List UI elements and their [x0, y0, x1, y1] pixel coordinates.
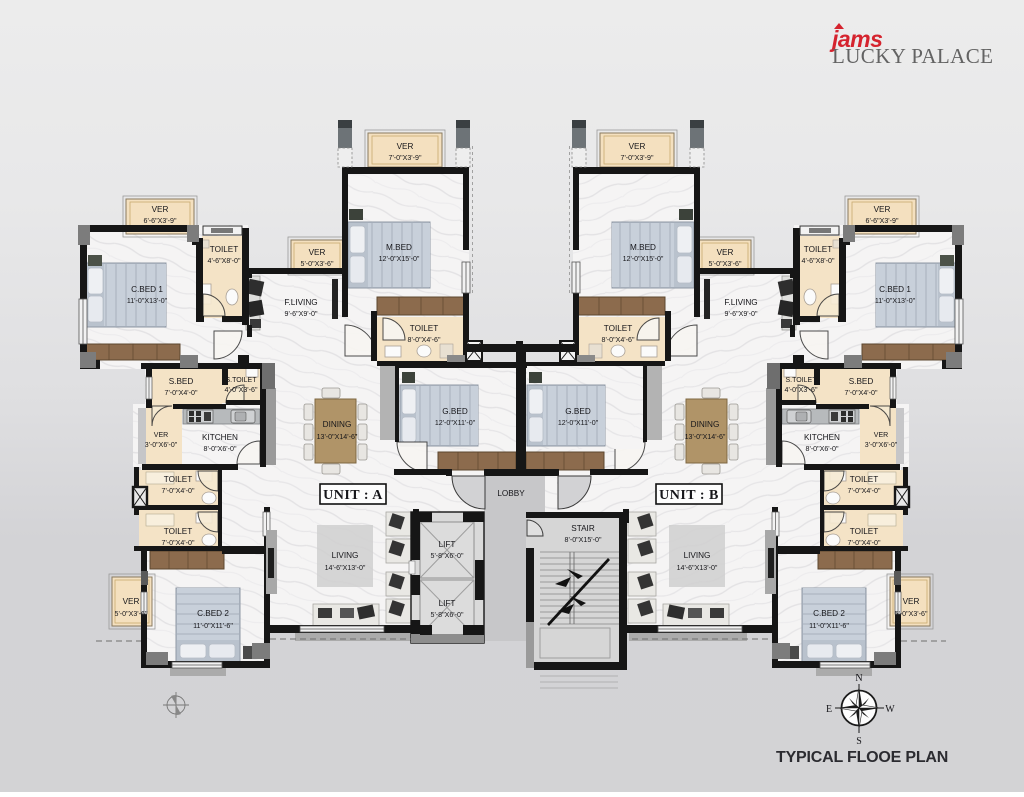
svg-text:DINING: DINING — [323, 420, 352, 429]
svg-text:F.LIVING: F.LIVING — [284, 298, 317, 307]
svg-text:LIFT: LIFT — [439, 540, 456, 549]
svg-text:M.BED: M.BED — [630, 243, 656, 252]
svg-text:5'-0"X3'-6": 5'-0"X3'-6" — [301, 260, 334, 268]
svg-text:LOBBY: LOBBY — [497, 489, 525, 498]
svg-text:W: W — [885, 704, 895, 715]
svg-text:LIVING: LIVING — [332, 551, 359, 560]
svg-text:VER: VER — [903, 597, 920, 606]
svg-text:7'-0"X4'-0": 7'-0"X4'-0" — [845, 389, 878, 397]
svg-text:8'-0"X6'-0": 8'-0"X6'-0" — [204, 445, 237, 453]
svg-text:G.BED: G.BED — [442, 407, 468, 416]
svg-text:TYPICAL FLOOE PLAN: TYPICAL FLOOE PLAN — [776, 749, 948, 766]
svg-text:TOILET: TOILET — [164, 475, 193, 484]
svg-text:7'-0"X4'-0": 7'-0"X4'-0" — [848, 487, 881, 495]
svg-text:TOILET: TOILET — [210, 245, 239, 254]
svg-text:F.LIVING: F.LIVING — [724, 298, 757, 307]
svg-text:4'-0"X3'-6": 4'-0"X3'-6" — [785, 386, 818, 394]
svg-text:UNIT : B: UNIT : B — [659, 488, 719, 503]
svg-text:7'-0"X3'-9": 7'-0"X3'-9" — [389, 154, 422, 162]
svg-text:KITCHEN: KITCHEN — [202, 433, 238, 442]
svg-text:S.BED: S.BED — [849, 377, 874, 386]
svg-text:VER: VER — [874, 432, 888, 439]
svg-text:5'-0"X3'-6": 5'-0"X3'-6" — [895, 610, 928, 618]
svg-text:UNIT : A: UNIT : A — [323, 488, 383, 503]
svg-text:C.BED 1: C.BED 1 — [131, 285, 163, 294]
svg-text:VER: VER — [717, 248, 734, 257]
svg-text:DINING: DINING — [691, 420, 720, 429]
svg-text:LUCKY PALACE: LUCKY PALACE — [832, 44, 993, 68]
svg-text:LIFT: LIFT — [439, 599, 456, 608]
svg-text:8'-0"X4'-6": 8'-0"X4'-6" — [408, 336, 441, 344]
svg-text:VER: VER — [309, 248, 326, 257]
svg-text:7'-0"X4'-0": 7'-0"X4'-0" — [162, 539, 195, 547]
svg-text:8'-0"X15'-0": 8'-0"X15'-0" — [565, 536, 602, 544]
svg-text:N: N — [855, 673, 862, 684]
svg-text:13'-0"X14'-6": 13'-0"X14'-6" — [317, 433, 358, 441]
svg-text:C.BED 1: C.BED 1 — [879, 285, 911, 294]
svg-text:TOILET: TOILET — [410, 324, 439, 333]
svg-text:S: S — [856, 736, 862, 747]
svg-text:VER: VER — [397, 142, 414, 151]
svg-text:S.TOILET: S.TOILET — [226, 377, 258, 384]
svg-text:VER: VER — [154, 432, 168, 439]
svg-text:4'-6"X8'-0": 4'-6"X8'-0" — [208, 257, 241, 265]
svg-text:TOILET: TOILET — [850, 527, 879, 536]
svg-text:7'-0"X4'-0": 7'-0"X4'-0" — [165, 389, 198, 397]
svg-text:12'-0"X15'-0": 12'-0"X15'-0" — [623, 255, 664, 263]
svg-text:VER: VER — [123, 597, 140, 606]
svg-text:4'-0"X3'-6": 4'-0"X3'-6" — [225, 386, 258, 394]
svg-text:LIVING: LIVING — [684, 551, 711, 560]
svg-text:4'-6"X8'-0": 4'-6"X8'-0" — [802, 257, 835, 265]
svg-text:KITCHEN: KITCHEN — [804, 433, 840, 442]
svg-text:12'-0"X11'-0": 12'-0"X11'-0" — [435, 419, 476, 427]
svg-text:STAIR: STAIR — [571, 524, 595, 533]
svg-text:TOILET: TOILET — [850, 475, 879, 484]
svg-text:11'-0"X11'-6": 11'-0"X11'-6" — [193, 622, 233, 630]
svg-text:14'-6"X13'-0": 14'-6"X13'-0" — [677, 564, 718, 572]
svg-text:S.TOILET: S.TOILET — [786, 377, 818, 384]
svg-text:TOILET: TOILET — [604, 324, 633, 333]
svg-text:11'-0"X13'-0": 11'-0"X13'-0" — [127, 297, 168, 305]
svg-text:9'-6"X9'-0": 9'-6"X9'-0" — [285, 310, 318, 318]
svg-text:6'-6"X3'-9": 6'-6"X3'-9" — [144, 217, 177, 225]
svg-text:TOILET: TOILET — [164, 527, 193, 536]
svg-text:9'-6"X9'-0": 9'-6"X9'-0" — [725, 310, 758, 318]
svg-text:14'-6"X13'-0": 14'-6"X13'-0" — [325, 564, 366, 572]
svg-text:3'-0"X6'-0": 3'-0"X6'-0" — [865, 442, 898, 449]
svg-text:5'-8"X6'-0": 5'-8"X6'-0" — [431, 552, 464, 560]
svg-text:12'-0"X11'-0": 12'-0"X11'-0" — [558, 419, 599, 427]
svg-text:5'-8"X6'-0": 5'-8"X6'-0" — [431, 611, 464, 619]
svg-text:TOILET: TOILET — [804, 245, 833, 254]
svg-text:8'-0"X4'-6": 8'-0"X4'-6" — [602, 336, 635, 344]
svg-text:C.BED 2: C.BED 2 — [813, 609, 845, 618]
svg-text:VER: VER — [874, 205, 891, 214]
svg-text:7'-0"X3'-9": 7'-0"X3'-9" — [621, 154, 654, 162]
svg-text:12'-0"X15'-0": 12'-0"X15'-0" — [379, 255, 420, 263]
svg-text:S.BED: S.BED — [169, 377, 194, 386]
svg-text:11'-0"X11'-6": 11'-0"X11'-6" — [809, 622, 849, 630]
svg-text:E: E — [826, 704, 832, 715]
svg-text:8'-0"X6'-0": 8'-0"X6'-0" — [806, 445, 839, 453]
svg-text:13'-0"X14'-6": 13'-0"X14'-6" — [685, 433, 726, 441]
svg-text:G.BED: G.BED — [565, 407, 591, 416]
svg-text:VER: VER — [152, 205, 169, 214]
svg-text:11'-0"X13'-0": 11'-0"X13'-0" — [875, 297, 916, 305]
svg-text:5'-0"X3'-6": 5'-0"X3'-6" — [709, 260, 742, 268]
svg-text:7'-0"X4'-0": 7'-0"X4'-0" — [848, 539, 881, 547]
svg-text:3'-0"X6'-0": 3'-0"X6'-0" — [145, 442, 178, 449]
svg-text:VER: VER — [629, 142, 646, 151]
svg-text:7'-0"X4'-0": 7'-0"X4'-0" — [162, 487, 195, 495]
svg-text:M.BED: M.BED — [386, 243, 412, 252]
svg-text:5'-0"X3'-6": 5'-0"X3'-6" — [115, 610, 148, 618]
svg-text:C.BED 2: C.BED 2 — [197, 609, 229, 618]
svg-text:6'-6"X3'-9": 6'-6"X3'-9" — [866, 217, 899, 225]
